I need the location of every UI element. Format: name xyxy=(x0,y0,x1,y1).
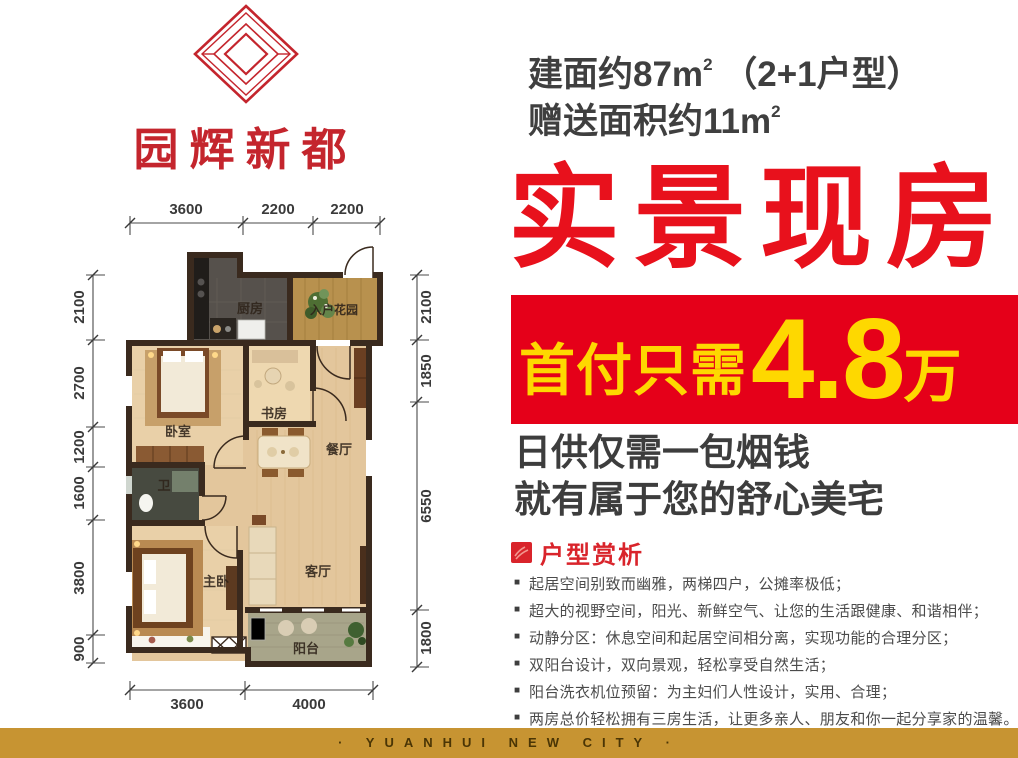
dim-bottom-1: 4000 xyxy=(292,696,325,710)
dim-left-2: 1200 xyxy=(71,430,88,463)
room-label-living: 客厅 xyxy=(305,564,331,579)
bullet-square-icon: ■ xyxy=(514,631,520,642)
slogan-line-2: 就有属于您的舒心美宅 xyxy=(514,477,884,524)
slogan-lines: 日供仅需一包烟钱 就有属于您的舒心美宅 xyxy=(514,430,884,524)
room-label-balcony: 阳台 xyxy=(293,641,319,656)
banner-prefix: 首付只需 xyxy=(519,326,747,407)
dim-right-1: 1850 xyxy=(418,354,435,387)
bullet-item: ■动静分区：休息空间和起居空间相分离，实现功能的合理分区； xyxy=(514,627,1018,654)
bullet-item: ■双阳台设计，双向景观，轻松享受自然生活； xyxy=(514,654,1018,681)
bullet-square-icon: ■ xyxy=(514,577,520,588)
footer-brand-text: · YUANHUI NEW CITY · xyxy=(0,728,1018,758)
footer-gold-band: · YUANHUI NEW CITY · xyxy=(0,728,1018,758)
banner-unit: 万 xyxy=(903,329,961,413)
room-label-master: 主卧 xyxy=(203,574,229,589)
floorplan: 厨房 入户花园 卧室 书房 餐厅 卫 主卧 客厅 阳台 3600 2200 22… xyxy=(60,190,480,710)
slogan-line-1: 日供仅需一包烟钱 xyxy=(514,430,884,477)
dim-left-0: 2100 xyxy=(71,290,88,323)
area-line-1: 建面约87m2 （2+1户型） xyxy=(528,52,922,99)
area-line-2: 赠送面积约11m2 xyxy=(528,99,922,146)
brand-name: 园辉新都 xyxy=(108,113,383,178)
red-square-seal-icon xyxy=(511,542,532,563)
bullet-square-icon: ■ xyxy=(514,658,520,669)
nested-diamond-logo-icon xyxy=(193,4,299,104)
dim-right-3: 1800 xyxy=(418,621,435,654)
room-label-study: 书房 xyxy=(261,406,287,421)
area-info: 建面约87m2 （2+1户型） 赠送面积约11m2 xyxy=(528,52,922,146)
headline-real-estate: 实景现房 xyxy=(508,160,1012,278)
analysis-header: 户型赏析 xyxy=(511,535,644,570)
dim-left-3: 1600 xyxy=(71,476,88,509)
dim-top-2: 2200 xyxy=(330,201,363,218)
dim-left-4: 3800 xyxy=(71,561,88,594)
brand-logo: 园辉新都 xyxy=(108,4,383,178)
analysis-title: 户型赏析 xyxy=(540,535,644,570)
downpayment-banner: 首付只需 4.8 万 xyxy=(511,295,1018,424)
bullet-item: ■起居空间别致而幽雅，两梯四户，公摊率极低； xyxy=(514,573,1018,600)
bullet-square-icon: ■ xyxy=(514,604,520,615)
dim-left-5: 900 xyxy=(71,636,88,661)
dim-right-2: 6550 xyxy=(418,489,435,522)
dim-top-0: 3600 xyxy=(169,201,202,218)
bullet-item: ■阳台洗衣机位预留：为主妇们人性设计，实用、合理； xyxy=(514,681,1018,708)
flyer-page: 园辉新都 xyxy=(0,0,1018,758)
bullet-square-icon: ■ xyxy=(514,685,520,696)
room-label-dining: 餐厅 xyxy=(325,442,352,457)
dim-top-1: 2200 xyxy=(261,201,294,218)
bullet-square-icon: ■ xyxy=(514,712,520,723)
room-label-bath: 卫 xyxy=(157,478,170,493)
bullet-item: ■超大的视野空间，阳光、新鲜空气、让您的生活跟健康、和谐相伴； xyxy=(514,600,1018,627)
dim-right-0: 2100 xyxy=(418,290,435,323)
banner-amount: 4.8 xyxy=(751,303,903,417)
analysis-bullet-list: ■起居空间别致而幽雅，两梯四户，公摊率极低； ■超大的视野空间，阳光、新鲜空气、… xyxy=(514,573,1018,735)
dim-bottom-0: 3600 xyxy=(170,696,203,710)
dim-left-1: 2700 xyxy=(71,366,88,399)
room-label-kitchen: 厨房 xyxy=(237,301,263,316)
room-label-bedroom: 卧室 xyxy=(165,424,191,439)
room-label-garden: 入户花园 xyxy=(310,302,358,317)
